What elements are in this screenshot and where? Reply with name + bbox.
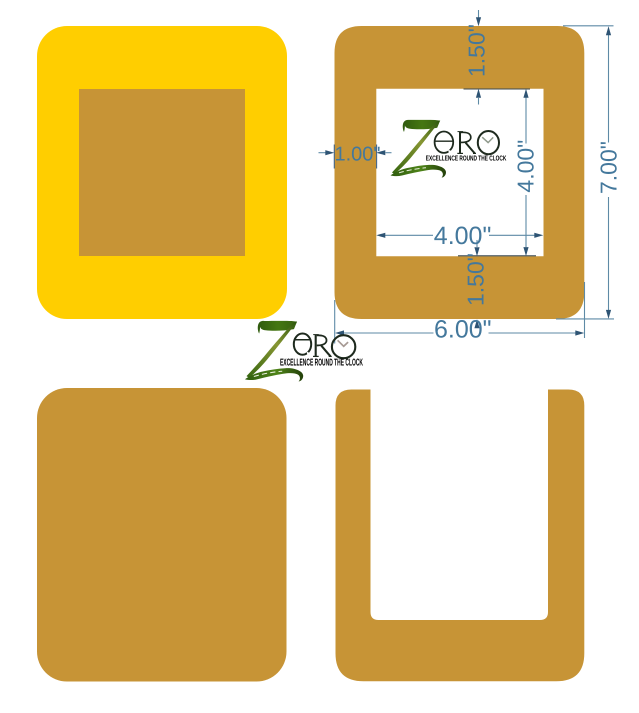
svg-text:4.00": 4.00" bbox=[434, 222, 492, 250]
svg-text:EXCELLENCE ROUND THE CLOCK: EXCELLENCE ROUND THE CLOCK bbox=[280, 358, 363, 369]
svg-text:1.50": 1.50" bbox=[463, 253, 489, 306]
svg-text:7.00": 7.00" bbox=[595, 141, 621, 194]
svg-text:4.00": 4.00" bbox=[513, 140, 539, 193]
svg-text:1.00": 1.00" bbox=[335, 143, 381, 165]
svg-text:1.50": 1.50" bbox=[464, 24, 490, 77]
svg-text:EXCELLENCE ROUND THE CLOCK: EXCELLENCE ROUND THE CLOCK bbox=[426, 153, 507, 162]
svg-text:6.00": 6.00" bbox=[434, 316, 492, 344]
